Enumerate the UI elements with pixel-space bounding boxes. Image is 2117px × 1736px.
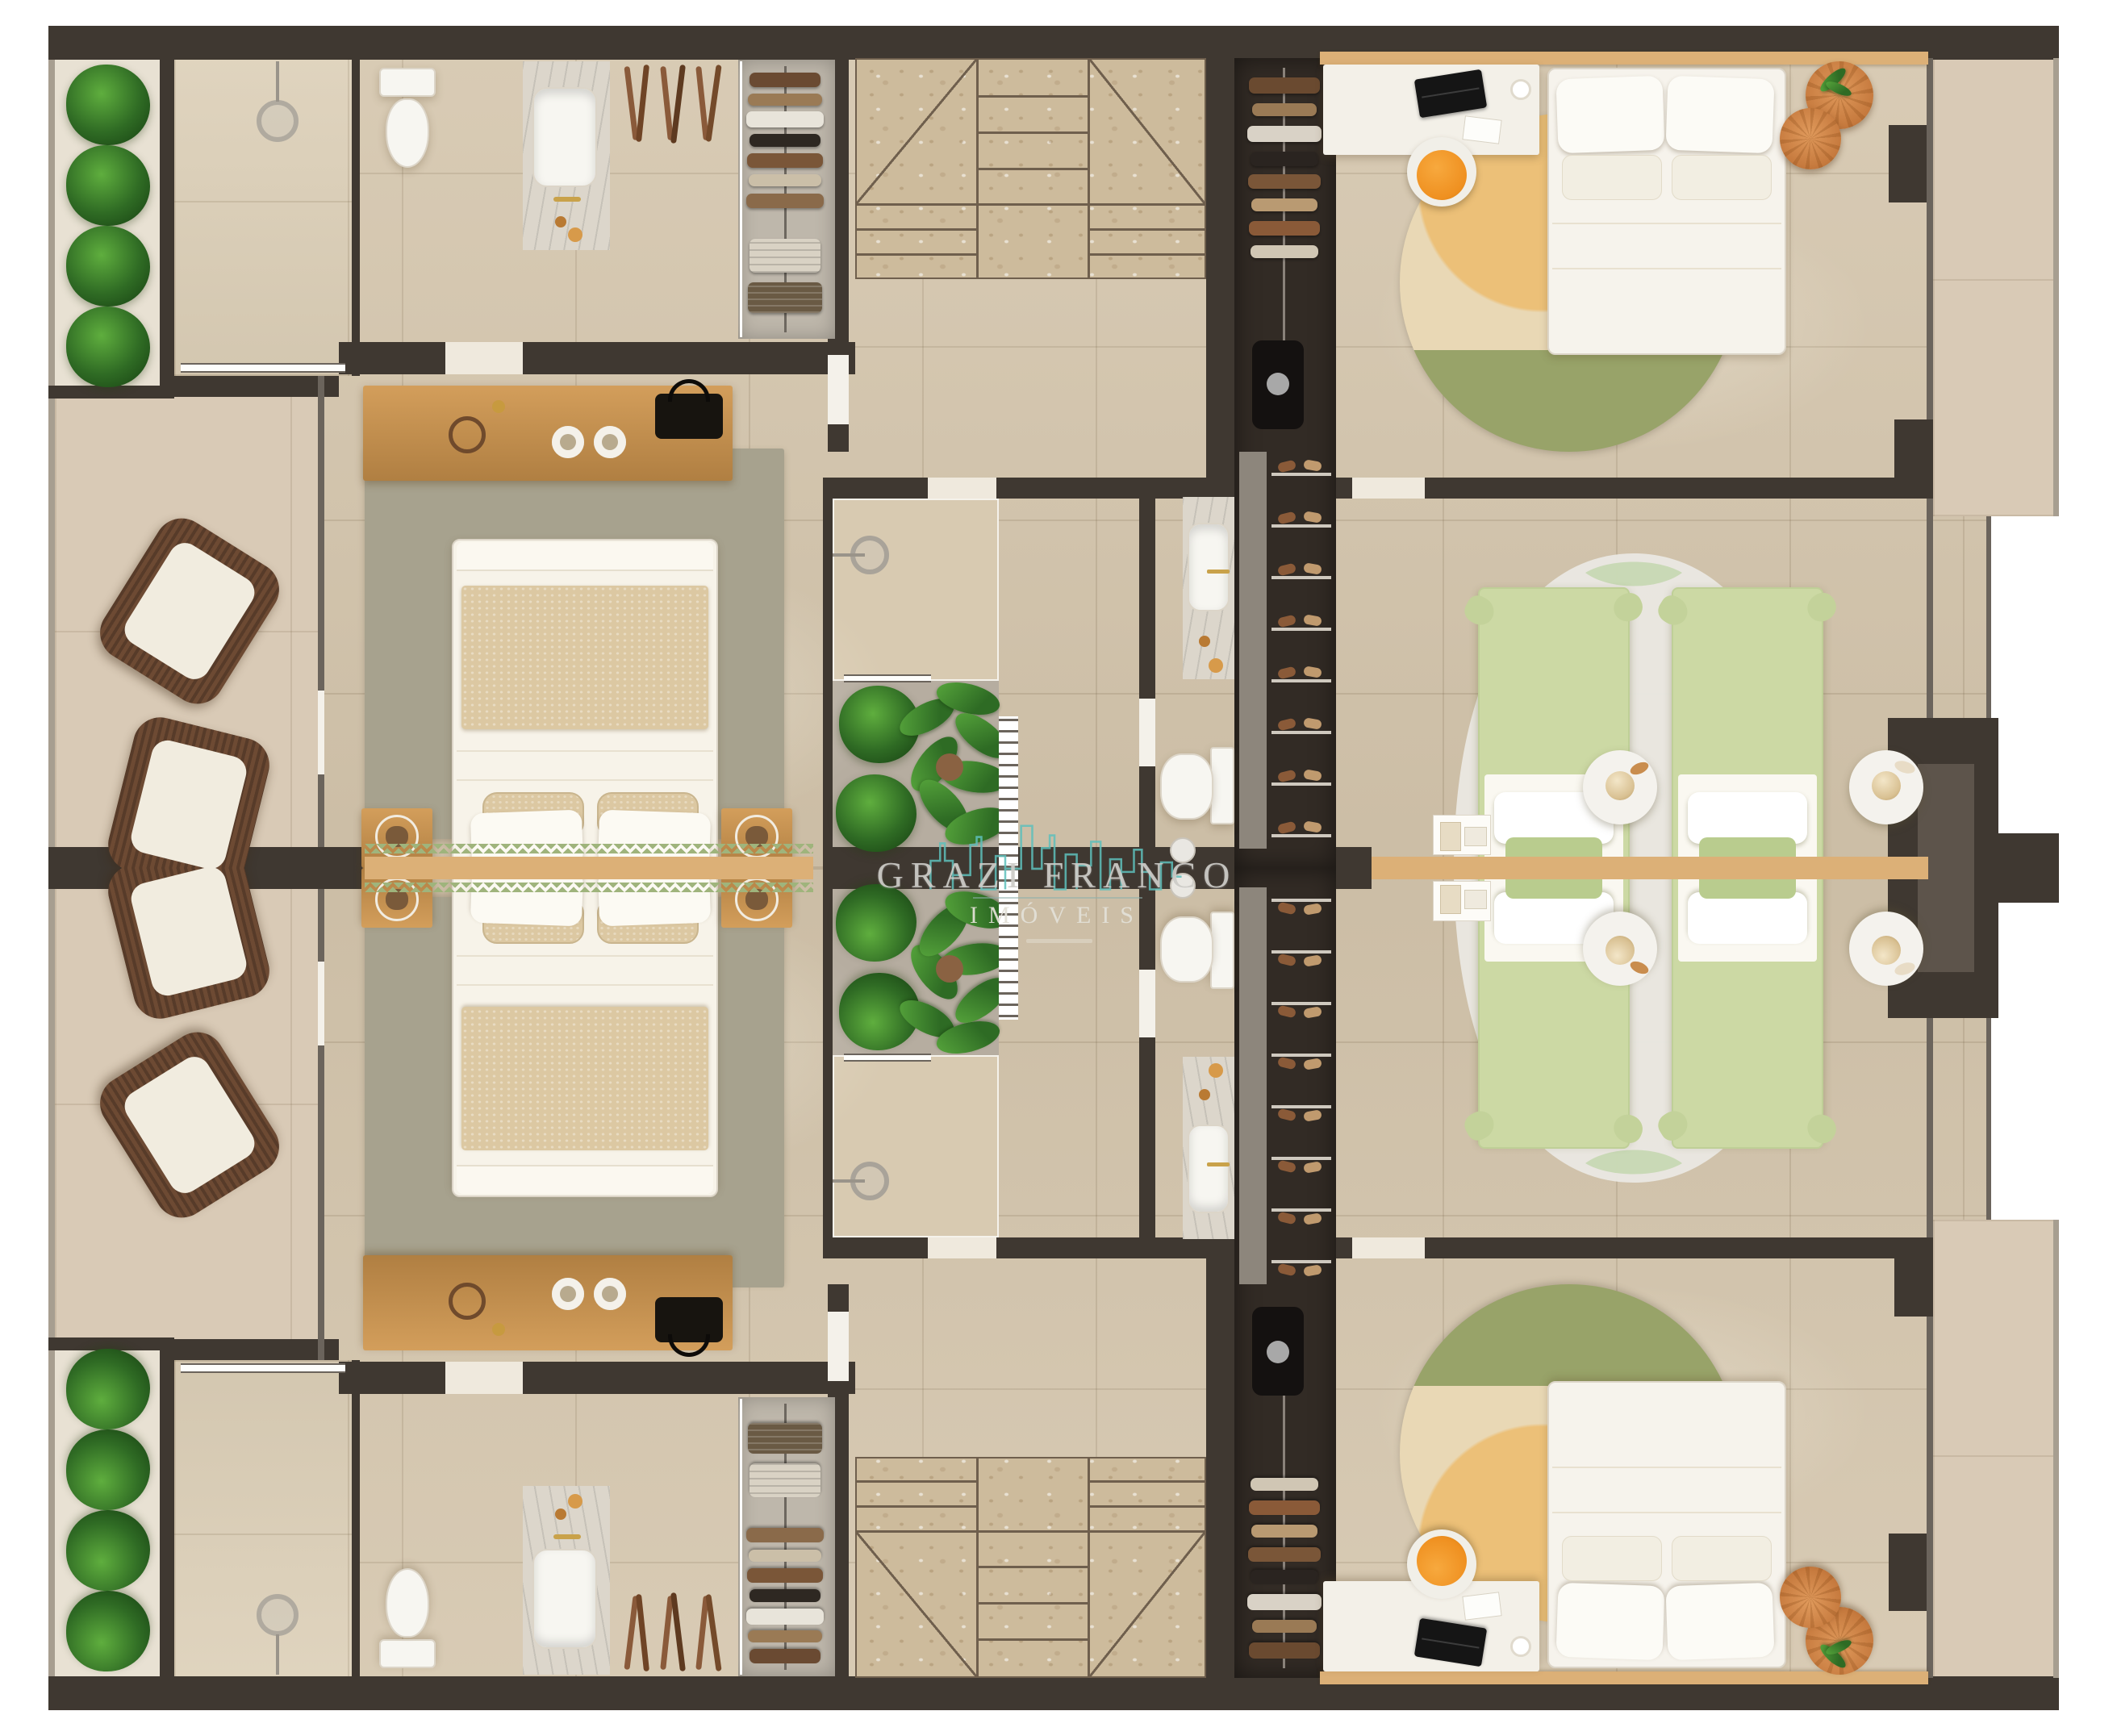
- bath-divider-wall: [1139, 478, 1155, 868]
- shoe: [1303, 717, 1322, 730]
- headboard-wood-strip: [1372, 857, 1928, 868]
- notepad: [1462, 1592, 1501, 1620]
- round-side-table: [1583, 912, 1657, 986]
- bush-plant: [66, 1349, 150, 1429]
- clothes-item: [1251, 1525, 1317, 1538]
- sandal-strap: [636, 1594, 649, 1671]
- shoe: [1277, 718, 1297, 732]
- sandal-strap: [636, 65, 649, 142]
- shoe-shelf: [1271, 561, 1331, 589]
- shoe: [1303, 666, 1322, 678]
- clothes-item: [1247, 1594, 1322, 1610]
- shoe: [1303, 1161, 1322, 1174]
- shower-glass-door: [181, 1363, 345, 1373]
- shoe-shelf: [1271, 665, 1331, 692]
- soap-bottle: [1199, 636, 1210, 647]
- shoe-rack: [1271, 889, 1331, 1278]
- atrium-ficus: [894, 868, 1015, 1057]
- wardrobe-glass: [740, 61, 742, 337]
- accent-pillow: [1562, 155, 1662, 200]
- vessel-sink: [1188, 523, 1230, 611]
- decor-item: [1893, 758, 1916, 775]
- towel-roll: [552, 1278, 584, 1310]
- shower-arm: [276, 61, 279, 102]
- stair-side-wall: [1206, 60, 1235, 532]
- stair-winder: [857, 1533, 976, 1676]
- shoe-shelf: [1271, 458, 1331, 486]
- shelf: [1271, 899, 1331, 902]
- stair-side-wall: [1206, 1204, 1235, 1676]
- clothes-item: [1249, 221, 1320, 236]
- stair-tread: [979, 131, 1088, 134]
- slatted-screen: [999, 716, 1018, 868]
- shelf: [1271, 524, 1331, 528]
- bush-plant: [66, 307, 150, 387]
- shoe: [1303, 1006, 1322, 1019]
- clothes-item: [1251, 1478, 1318, 1491]
- planter-end-wall: [48, 386, 174, 399]
- gold-kettle: [492, 1323, 505, 1336]
- accent-pillow: [1562, 1536, 1662, 1581]
- shower-head: [257, 100, 299, 142]
- woven-throw: [461, 586, 708, 729]
- toilet-tank: [1210, 912, 1234, 989]
- clothes-item: [1248, 174, 1321, 189]
- shower-arm: [833, 1179, 865, 1183]
- clothes-item: [1249, 77, 1320, 94]
- bedroom-top-wall-b: [523, 1362, 855, 1394]
- chair-seat: [1417, 1536, 1467, 1586]
- bed-pillow: [1555, 1583, 1664, 1661]
- folded-stack: [750, 1463, 820, 1497]
- bathroom-door: [445, 342, 523, 374]
- exterior-white: [1991, 868, 2059, 1220]
- bed-pillow: [1688, 892, 1807, 944]
- shelf: [1271, 628, 1331, 631]
- round-side-table: [1583, 750, 1657, 824]
- woven-throw: [461, 1007, 708, 1150]
- staircase: [855, 58, 1206, 279]
- shoe: [1277, 954, 1297, 967]
- shoe: [1277, 511, 1297, 525]
- hall-door: [828, 355, 849, 424]
- hanging-sandals: [625, 1584, 730, 1673]
- bath-door-gap: [1139, 699, 1155, 766]
- party-wall-right: [1998, 868, 2059, 903]
- toilet-bowl: [1160, 753, 1213, 820]
- twin-room-door: [1352, 478, 1425, 499]
- bath-top-wall: [1155, 1237, 1234, 1258]
- glass-jamb-a: [1889, 125, 1927, 202]
- rug-zigzag-trim: [365, 844, 813, 853]
- clothes-item: [748, 94, 822, 106]
- right-balcony-floor: [1933, 1220, 2053, 1678]
- bath-divider-wall: [1139, 868, 1155, 1258]
- shelf: [1271, 1208, 1331, 1212]
- unit-floorplan-mirrored: [0, 868, 2117, 1736]
- stair-tread: [1090, 1480, 1205, 1483]
- round-side-table: [1849, 750, 1923, 824]
- duvet-seam: [1552, 1467, 1781, 1468]
- right-balcony-floor: [1933, 58, 2053, 516]
- clothes-item: [1252, 103, 1317, 116]
- stair-tread: [979, 168, 1088, 170]
- shower-head: [257, 1594, 299, 1636]
- toilet-tank: [379, 68, 436, 97]
- soap-bottle: [1209, 1063, 1223, 1078]
- shelf: [1271, 1157, 1331, 1160]
- right-balcony-rail: [2053, 1220, 2059, 1678]
- table-lamp: [1605, 771, 1635, 800]
- grill-inner: [1918, 868, 1974, 972]
- ensuite-door: [928, 478, 996, 499]
- clothes-item: [746, 111, 824, 127]
- folded-stack: [748, 282, 822, 313]
- shoe: [1277, 563, 1297, 577]
- left-balcony-rail: [48, 60, 55, 868]
- atrium-wall: [823, 499, 833, 868]
- clothes-item: [1251, 152, 1318, 166]
- shoe: [1277, 770, 1297, 783]
- clothes-item: [1251, 245, 1318, 258]
- bush-plant: [66, 65, 150, 145]
- shoe: [1303, 903, 1322, 916]
- soap-bottle: [555, 1509, 566, 1520]
- clothes-item: [1247, 126, 1322, 142]
- exterior-white: [1991, 516, 2059, 868]
- stair-winder: [1090, 60, 1205, 203]
- clothes-item: [1252, 1620, 1317, 1633]
- bed-pillow: [1665, 76, 1774, 154]
- shoe: [1277, 1005, 1297, 1019]
- balcony-glass-wall: [318, 868, 324, 1360]
- stair-tread: [979, 1566, 1088, 1568]
- mid-wall-a: [823, 1237, 928, 1258]
- wardrobe: [738, 60, 835, 339]
- shower-partition: [352, 60, 360, 376]
- shelf: [1271, 1105, 1331, 1108]
- clothes-item: [1251, 198, 1317, 211]
- towel-ring: [449, 416, 486, 453]
- mid-wall-b: [996, 478, 1139, 499]
- sandal-strap: [670, 1592, 686, 1671]
- balcony-door-gap: [318, 691, 324, 774]
- shoe: [1303, 511, 1322, 524]
- shoe: [1277, 1108, 1297, 1122]
- vacuum-appliance: [1252, 1307, 1304, 1396]
- toilet-tank: [379, 1639, 436, 1668]
- duvet-seam: [1552, 223, 1781, 224]
- shoe-shelf: [1271, 992, 1331, 1020]
- shoe: [1277, 460, 1297, 474]
- hanging-sandals: [625, 63, 730, 152]
- shower-arm: [276, 1634, 279, 1675]
- desk-chair: [1407, 137, 1476, 207]
- shoe-shelf: [1271, 1095, 1331, 1123]
- twin-room-wall-a: [1336, 1237, 1352, 1258]
- shoe: [1277, 1057, 1297, 1070]
- shelf: [1271, 1002, 1331, 1005]
- atrium-ficus: [894, 679, 1015, 868]
- clothes-item: [749, 174, 821, 186]
- clothes-item: [747, 153, 823, 168]
- glass-jamb-b: [1894, 419, 1933, 499]
- shelf: [1271, 731, 1331, 734]
- ensuite-door: [928, 1237, 996, 1258]
- soap-bottle: [568, 227, 582, 242]
- plant-pot: [936, 753, 963, 781]
- shoe: [1303, 954, 1322, 967]
- unit-floorplan: [0, 0, 2117, 868]
- planter-wall: [160, 60, 174, 395]
- shoe-shelf: [1271, 1250, 1331, 1278]
- shoe: [1303, 459, 1322, 472]
- table-lamp: [1605, 936, 1635, 965]
- accent-pillow: [1672, 155, 1772, 200]
- duvet-seam: [1552, 268, 1781, 269]
- balcony-glass-wall: [318, 376, 324, 868]
- planter-box: [63, 1349, 153, 1671]
- shoe: [1277, 1212, 1297, 1225]
- clothes-item: [1248, 1547, 1321, 1562]
- stair-tread: [979, 1602, 1088, 1605]
- shelf: [1271, 473, 1331, 476]
- sandal-strap: [705, 1594, 721, 1671]
- shoe: [1303, 1109, 1322, 1122]
- folded-stack: [748, 1423, 822, 1454]
- shelf: [1271, 782, 1331, 786]
- stair-tread: [857, 228, 976, 231]
- bed-pillow: [1688, 792, 1807, 844]
- clothes-item: [750, 1589, 820, 1602]
- shoe-shelf: [1271, 1147, 1331, 1175]
- shoe: [1277, 615, 1297, 628]
- bed-pillow: [1555, 76, 1664, 154]
- shoe-shelf: [1271, 820, 1331, 847]
- towel-roll: [594, 1278, 626, 1310]
- mug: [1510, 79, 1531, 100]
- bush-plant: [66, 1510, 150, 1591]
- stair-tread: [857, 1480, 976, 1483]
- table-lamp: [1872, 771, 1901, 800]
- desk-chair: [1407, 1529, 1476, 1599]
- stair-landing-line: [857, 203, 1205, 206]
- shoe: [1303, 769, 1322, 782]
- shoe: [1277, 902, 1297, 916]
- shower-arm: [833, 553, 865, 557]
- vanity-sink: [532, 87, 597, 187]
- soap-bottle: [1199, 1089, 1210, 1100]
- bath-door-gap: [1139, 970, 1155, 1037]
- pouf-ottoman: [1780, 1567, 1841, 1628]
- stair-tread: [857, 1505, 976, 1508]
- towel-ring: [449, 1283, 486, 1320]
- bedroom-top-wall-a: [339, 342, 445, 374]
- exterior-wall-below-shower: [160, 376, 339, 397]
- gold-faucet: [1207, 1162, 1230, 1166]
- headboard-wood-strip: [365, 868, 813, 879]
- photo-frame: [1440, 885, 1461, 914]
- twin-room-door: [1352, 1237, 1425, 1258]
- stair-tread: [1090, 228, 1205, 231]
- chair-cushion: [127, 868, 249, 999]
- shoe: [1277, 1263, 1297, 1277]
- duvet-fold: [457, 542, 713, 571]
- hall-door: [828, 1312, 849, 1381]
- waste-bin: [1170, 873, 1196, 899]
- laptop-hinge: [1422, 1638, 1479, 1648]
- stair-winder: [1090, 1533, 1205, 1676]
- shoe: [1303, 820, 1322, 833]
- atrium-wall: [823, 868, 833, 1237]
- table-lamp: [1872, 936, 1901, 965]
- laptop-hinge: [1422, 87, 1479, 98]
- duvet-fold: [457, 1165, 713, 1194]
- headboard-wood-strip: [1372, 868, 1928, 879]
- stair-tread: [1090, 1505, 1205, 1508]
- grill-inner: [1918, 764, 1974, 868]
- shelf: [1271, 1260, 1331, 1263]
- duvet-seam: [457, 955, 713, 957]
- pouf-ottoman: [1780, 108, 1841, 169]
- shoe: [1303, 1264, 1322, 1277]
- bedroom-top-wall-a: [339, 1362, 445, 1394]
- vessel-sink: [1188, 1125, 1230, 1213]
- vacuum-appliance: [1252, 340, 1304, 429]
- toilet-tank: [1210, 747, 1234, 824]
- sandal-strap: [705, 65, 721, 142]
- planter-wall: [160, 1341, 174, 1676]
- shoe-shelf: [1271, 768, 1331, 795]
- gold-faucet: [1207, 570, 1230, 574]
- clothes-item: [1251, 1570, 1318, 1584]
- twin-room-wall-a: [1336, 478, 1352, 499]
- bedside-shelf: [1433, 815, 1491, 855]
- closet-side-panel: [1239, 887, 1267, 1284]
- shoe-shelf: [1271, 941, 1331, 968]
- duvet-seam: [457, 984, 713, 986]
- shoe-shelf: [1271, 1199, 1331, 1226]
- wardrobe-glass: [740, 1399, 742, 1675]
- duvet-seam: [1552, 1512, 1781, 1513]
- shoe-rack: [1271, 458, 1331, 847]
- shoe-shelf: [1271, 1044, 1331, 1071]
- bath-top-wall: [1155, 478, 1234, 499]
- soap-bottle: [1209, 658, 1223, 673]
- mug: [1510, 1636, 1531, 1657]
- duvet-seam: [457, 750, 713, 752]
- toilet-bowl: [386, 1568, 429, 1638]
- bathroom-door: [445, 1362, 523, 1394]
- bedside-shelf: [1433, 881, 1491, 921]
- toilet-bowl: [386, 98, 429, 168]
- clothes-item: [750, 73, 820, 87]
- rug-zigzag-trim: [365, 883, 813, 892]
- round-side-table: [1849, 912, 1923, 986]
- stair-tread: [979, 1638, 1088, 1641]
- soap-bottle: [555, 216, 566, 227]
- clothes-item: [746, 1609, 824, 1625]
- shoe: [1303, 614, 1322, 627]
- mid-wall-a: [823, 478, 928, 499]
- photo-frame: [1440, 822, 1461, 851]
- shoe: [1277, 821, 1297, 835]
- glass-jamb-b: [1894, 1237, 1933, 1317]
- towel-roll: [594, 426, 626, 458]
- sandal-strap: [670, 65, 686, 144]
- plant-pot: [936, 955, 963, 983]
- shelf: [1271, 1054, 1331, 1057]
- vanity-sink: [532, 1549, 597, 1649]
- mid-wall-b: [996, 1237, 1139, 1258]
- photo-frame: [1464, 827, 1487, 846]
- headboard-wood-strip: [365, 857, 813, 868]
- toilet-bowl: [1160, 916, 1213, 983]
- planter-box: [63, 65, 153, 387]
- wardrobe: [738, 1397, 835, 1676]
- stair-tread: [979, 95, 1088, 98]
- shoe-shelf: [1271, 613, 1331, 641]
- gold-kettle: [492, 400, 505, 413]
- bush-plant: [66, 1591, 150, 1671]
- slatted-screen: [999, 868, 1018, 1020]
- clothes-item: [750, 134, 820, 147]
- folded-stack: [750, 239, 820, 273]
- shelf: [1271, 950, 1331, 954]
- bed-pillow: [1665, 1583, 1774, 1661]
- shelf: [1271, 576, 1331, 579]
- shoe-shelf: [1271, 510, 1331, 537]
- party-wall-right: [1998, 833, 2059, 868]
- clothes-item: [1249, 1500, 1320, 1515]
- decor-item: [1628, 760, 1650, 778]
- shoe-shelf: [1271, 716, 1331, 744]
- shower-glass-door: [181, 363, 345, 373]
- clothes-item: [747, 1568, 823, 1583]
- decor-item: [1628, 959, 1650, 977]
- bedroom-top-wall-b: [523, 342, 855, 374]
- bush-plant: [66, 226, 150, 307]
- shoe: [1303, 1058, 1322, 1070]
- stair-tread: [1090, 253, 1205, 256]
- shoe: [1277, 1160, 1297, 1174]
- bush-plant: [66, 1429, 150, 1510]
- duvet-seam: [457, 779, 713, 781]
- shoe: [1303, 562, 1322, 575]
- floor-plan-rendering: GRAZI FRANCO IMÓVEIS: [0, 0, 2117, 1736]
- clothes-item: [746, 194, 824, 208]
- notepad: [1462, 115, 1501, 144]
- stair-tread: [857, 253, 976, 256]
- shelf: [1271, 834, 1331, 837]
- shelf: [1271, 679, 1331, 682]
- photo-frame: [1464, 890, 1487, 909]
- gold-faucet: [553, 1534, 581, 1539]
- chair-seat: [1417, 150, 1467, 200]
- clothes-item: [1249, 1642, 1320, 1659]
- gold-faucet: [553, 197, 581, 202]
- accent-pillow: [1672, 1536, 1772, 1581]
- right-balcony-rail: [2053, 58, 2059, 516]
- chair-cushion: [127, 737, 249, 868]
- towel-roll: [552, 426, 584, 458]
- bush-plant: [66, 145, 150, 226]
- twin-room-wall-b: [1425, 1237, 1928, 1258]
- shoe: [1277, 666, 1297, 680]
- balcony-door-gap: [318, 962, 324, 1045]
- shower-partition: [352, 1360, 360, 1676]
- soap-bottle: [568, 1494, 582, 1509]
